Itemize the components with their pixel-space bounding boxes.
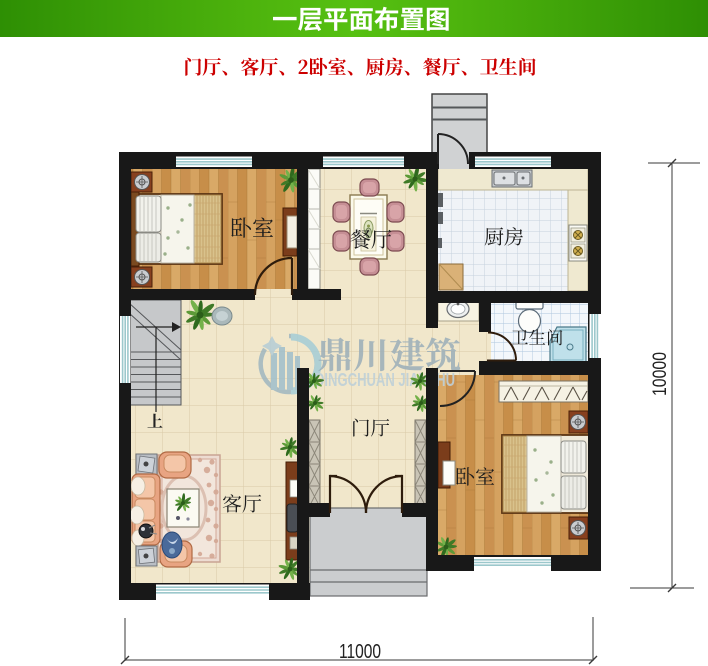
svg-text:11000: 11000 bbox=[339, 641, 381, 663]
svg-text:10000: 10000 bbox=[649, 352, 671, 396]
